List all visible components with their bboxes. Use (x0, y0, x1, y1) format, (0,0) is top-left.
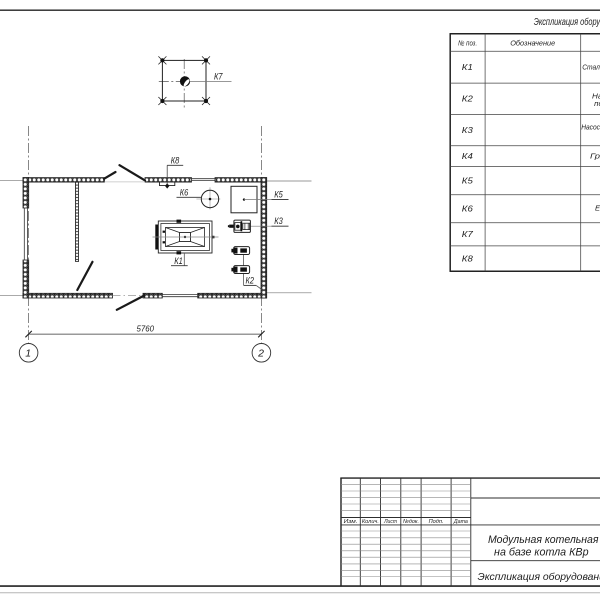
svg-text:Модульная котельная: Модульная котельная (488, 534, 599, 546)
svg-text:Дата: Дата (453, 519, 469, 525)
svg-text:Емкость: Емкость (595, 203, 600, 212)
svg-text:К8: К8 (171, 156, 180, 166)
svg-text:К8: К8 (462, 254, 474, 263)
svg-text:Колич.: Колич. (362, 519, 379, 525)
svg-text:К1: К1 (462, 63, 473, 72)
svg-text:Стальной котел: Стальной котел (582, 63, 600, 72)
svg-text:Насос сетевой: Насос сетевой (581, 123, 600, 132)
svg-text:на базе котла КВр: на базе котла КВр (494, 546, 589, 558)
svg-text:Грязевик: Грязевик (590, 151, 600, 160)
svg-text:К7: К7 (214, 72, 223, 82)
svg-text:Обозначение: Обозначение (510, 39, 555, 48)
svg-text:1: 1 (25, 348, 31, 360)
svg-text:К3: К3 (462, 126, 474, 135)
svg-text:К2: К2 (246, 276, 255, 286)
svg-text:К3: К3 (274, 216, 283, 226)
svg-text:К5: К5 (274, 189, 283, 199)
svg-text:под: под (594, 99, 600, 108)
svg-text:2: 2 (257, 348, 264, 360)
svg-text:№док.: №док. (403, 519, 419, 525)
svg-text:К5: К5 (462, 176, 474, 185)
svg-text:К6: К6 (462, 204, 474, 213)
svg-text:К4: К4 (462, 152, 474, 161)
svg-text:Подп.: Подп. (429, 519, 444, 525)
svg-text:Экспликация оборудования: Экспликация оборудования (478, 571, 600, 583)
svg-text:Лист: Лист (383, 519, 397, 525)
svg-text:Экспликация оборудования: Экспликация оборудования (534, 16, 600, 28)
svg-text:Изм.: Изм. (344, 519, 358, 525)
svg-text:К2: К2 (462, 95, 474, 104)
svg-text:5760: 5760 (137, 324, 155, 334)
svg-text:К6: К6 (180, 188, 189, 198)
svg-text:№ поз.: № поз. (458, 39, 477, 48)
svg-text:К1: К1 (174, 256, 183, 266)
svg-text:К7: К7 (462, 230, 474, 239)
